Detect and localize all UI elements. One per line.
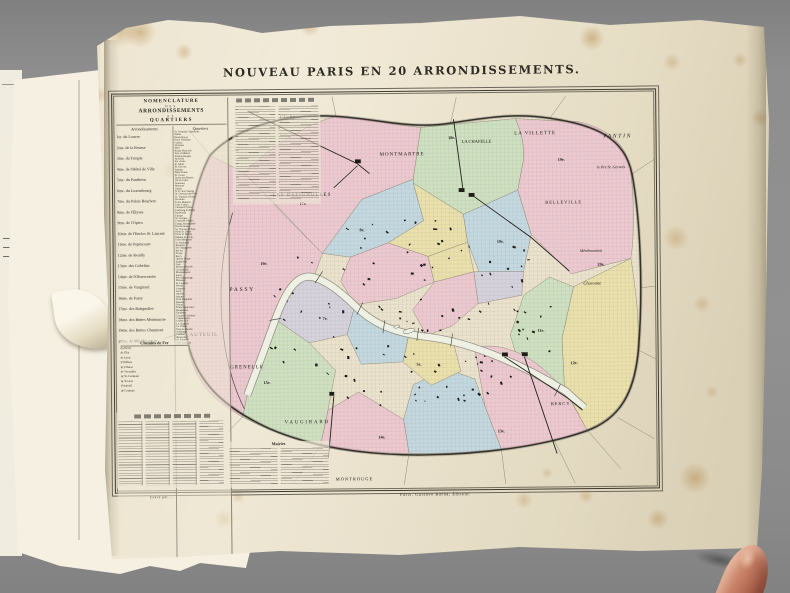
list-item: 14me. de l'Observatoire: [118, 271, 174, 282]
label-5e: 5e.: [417, 362, 422, 367]
label-8e: 8e.: [360, 227, 365, 232]
label-passy: PASSY: [230, 287, 256, 293]
list-item: 17me. des Batignolles: [118, 303, 174, 314]
label-pre-st-gervais: le Pré St. Gervais: [597, 164, 626, 169]
label-12e: 12e.: [571, 360, 578, 365]
label-pantin: PANTIN: [602, 133, 632, 139]
arrondissements-list: 1er. du Louvre2me. de la Bourse3me. du T…: [116, 131, 174, 347]
mairies-table: Mairies: [227, 441, 329, 488]
label-11e: 11e.: [538, 328, 545, 333]
list-item: 15me. de Vaugirard: [118, 282, 174, 293]
panel-title-line: QUARTIERS: [116, 118, 226, 126]
list-item: 19me. des Buttes Chaumont: [118, 325, 174, 336]
table-column: [230, 448, 278, 485]
quartiers-list: St. Germain l'AuxerroisHallesPalais Roya…: [174, 131, 228, 348]
list-item: 18me. des Buttes Montmartre: [118, 314, 174, 325]
label-grenelle: GRENELLE: [230, 365, 264, 370]
label-bercy: BERCY: [551, 401, 571, 406]
table-column: [118, 421, 143, 485]
page-edge-text-mark: [3, 256, 10, 257]
label-7e: 7e.: [323, 316, 328, 321]
map-frame: Clichy LES BATIGNOLLES 17e. MONTMARTRE 1…: [111, 88, 660, 493]
label-10e: 10e.: [497, 239, 504, 244]
index-column: [278, 106, 319, 200]
map-title: NOUVEAU PARIS EN 20 ARRONDISSEMENTS.: [223, 63, 545, 80]
nomenclature-panel: NOMENCLATURE DES ARRONDISSEMENTS ET QUAR…: [114, 98, 232, 567]
table-column: [172, 421, 197, 485]
label-vaugirard: VAUGIRARD: [285, 420, 330, 425]
list-item: 8me. de l'Élysée: [117, 206, 173, 217]
foxing-stain: [246, 12, 262, 28]
list-item: 11me. de Popincourt: [117, 239, 173, 250]
monuments-index-block: [232, 98, 321, 205]
label-14e: 14e.: [378, 434, 385, 439]
table-header-dashes: [134, 414, 210, 419]
engraver-imprint: Gravé par ...: [150, 495, 173, 499]
label-16e: 16e.: [260, 261, 267, 266]
list-item: 9me. de l'Opéra: [117, 217, 173, 228]
label-18e: 18e.: [448, 135, 455, 140]
sheet-right-edge-shadow: [746, 24, 766, 552]
list-item: 4me. de l'Hôtel de Ville: [117, 163, 173, 174]
list-item: 3me. du Temple: [117, 153, 173, 164]
list-item: 6me. du Luxembourg: [117, 185, 173, 196]
map-sheet-paper: NOUVEAU PARIS EN 20 ARRONDISSEMENTS.: [0, 0, 790, 593]
bottom-left-table: [116, 412, 229, 489]
label-la-villette: LA VILLETTE: [514, 131, 556, 136]
list-item: de Ceinture: [121, 388, 189, 393]
label-belleville: BELLEVILLE: [545, 199, 582, 204]
label-la-chapelle: LA CHAPELLE: [462, 139, 492, 144]
list-item: 12me. de Reuilly: [118, 249, 174, 260]
page-edge-text-mark: [3, 238, 10, 239]
list-item: 2me. de la Bourse: [117, 142, 173, 153]
publisher-imprint: Paris, Gustave Barba, Éditeur.: [400, 491, 471, 497]
photo-of-antique-paris-map: NOUVEAU PARIS EN 20 ARRONDISSEMENTS.: [0, 0, 790, 593]
label-13e: 13e.: [498, 428, 505, 433]
list-item: 16me. de Passy: [118, 292, 174, 303]
label-montmartre: MONTMARTRE: [380, 152, 425, 157]
label-19e: 19e.: [558, 157, 565, 162]
label-charonne: Charonne: [583, 281, 601, 286]
label-menilmontant: Ménilmontant: [579, 248, 603, 253]
list-item: 5me. du Panthéon: [117, 174, 173, 185]
list-item: 1er. du Louvre: [116, 131, 172, 142]
label-20e: 20e.: [598, 262, 605, 267]
table-column: [199, 421, 224, 485]
index-column: [235, 106, 276, 200]
list-item: 7me. du Palais Bourbon: [117, 196, 173, 207]
table-column: [145, 421, 170, 485]
list-item: 13me. des Gobelins: [118, 260, 174, 271]
table-column: [281, 448, 329, 485]
label-montrouge: MONTROUGE: [336, 476, 374, 481]
railways-list: du Nordde l'Estde Lyond'Orléansde l'Oues…: [121, 346, 189, 394]
list-item: 10me. de l'Enclos St. Laurent: [117, 228, 173, 239]
label-15e: 15e.: [263, 380, 270, 385]
index-header-dashes: [236, 98, 316, 103]
page-edge-text-mark: [3, 247, 10, 248]
mairies-table-header: Mairies: [227, 441, 329, 447]
torn-page-curl: [51, 284, 117, 353]
